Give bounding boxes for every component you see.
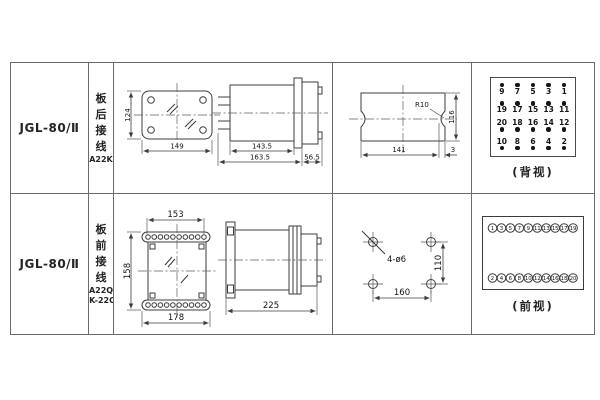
dim-height: 124 xyxy=(124,108,132,122)
dim-total-length: 225 xyxy=(263,301,279,311)
terminal-dot-icon xyxy=(531,146,536,151)
terminal-number: 10 xyxy=(525,276,532,282)
terminal-pin: 13 xyxy=(541,101,556,114)
mount-char: 线 xyxy=(96,139,107,155)
mount-char: 接 xyxy=(96,254,107,270)
terminal-pin: 14 xyxy=(541,119,556,132)
terminal-pin: 5 xyxy=(525,82,540,95)
terminal-pin: 20 xyxy=(494,119,509,132)
mount-char: 接 xyxy=(96,123,107,139)
mount-code: A22K xyxy=(89,155,113,165)
terminal-number: 15 xyxy=(552,226,559,232)
terminal-pin: 18 xyxy=(510,119,525,132)
front-view-drawing: 153 158 178 xyxy=(123,210,216,327)
strip-terminal xyxy=(158,303,163,308)
back-view-label: (背视) xyxy=(512,164,554,180)
dim-vertical-span: 110 xyxy=(434,255,444,271)
terminal-number: 4 xyxy=(546,138,551,146)
side-view-drawing: 225 xyxy=(218,222,326,315)
terminal-number: 5 xyxy=(509,226,512,232)
terminal-number: 17 xyxy=(561,226,568,232)
terminal-number: 17 xyxy=(512,106,522,114)
terminal-pin: 12 xyxy=(557,119,572,132)
terminal-number: 11 xyxy=(534,226,541,232)
terminal-number: 6 xyxy=(530,138,535,146)
strip-terminal xyxy=(189,303,194,308)
strip-terminal xyxy=(164,235,169,240)
cell-outline-drawings-row1: 124 149 143.5 xyxy=(114,63,333,194)
terminal-number: 1 xyxy=(491,226,494,232)
strip-terminal xyxy=(177,303,182,308)
mount-code: JK-22Q xyxy=(89,296,114,306)
mount-char: 线 xyxy=(96,270,107,286)
terminal-dot-icon xyxy=(515,146,520,151)
terminal-number: 14 xyxy=(543,119,553,127)
strip-terminal xyxy=(195,303,200,308)
terminal-number: 13 xyxy=(543,106,553,114)
terminal-dot-icon xyxy=(546,146,551,151)
strip-terminal xyxy=(183,303,188,308)
strip-terminal xyxy=(158,235,163,240)
terminal-number: 18 xyxy=(561,276,568,282)
strip-terminal xyxy=(146,303,151,308)
terminal-pin: 7 xyxy=(510,82,525,95)
terminal-dot-icon xyxy=(500,146,505,151)
terminal-number: 12 xyxy=(559,119,569,127)
terminal-number: 20 xyxy=(497,119,507,127)
mount-char: 前 xyxy=(96,238,107,254)
front-view-label: (前视) xyxy=(512,298,554,314)
cell-mounting-row2: 板 前 接 线 A22Q JK-22Q xyxy=(89,194,114,334)
terminal-number: 2 xyxy=(562,138,567,146)
terminal-dot-icon xyxy=(562,146,567,151)
terminal-number: 18 xyxy=(512,119,522,127)
cell-panel-cutout-row1: R10 116 141 3 xyxy=(333,63,472,194)
dimension-table: JGL-80/Ⅱ 板 后 接 线 A22K xyxy=(10,62,595,335)
strip-terminal xyxy=(152,303,157,308)
model-label: JGL-80/Ⅱ xyxy=(20,121,80,135)
cell-model-row2: JGL-80/Ⅱ xyxy=(11,194,89,334)
strip-terminal xyxy=(171,235,176,240)
terminal-number: 8 xyxy=(518,276,522,282)
terminal-row-bottom: 2468101214161820 xyxy=(488,273,577,282)
terminal-number: 13 xyxy=(543,226,550,232)
terminal-number: 19 xyxy=(497,106,507,114)
terminal-pin: 1 xyxy=(557,82,572,95)
terminal-number: 7 xyxy=(518,226,521,232)
terminal-dot-icon xyxy=(546,127,551,132)
dim-cutout-width: 141 xyxy=(392,146,405,154)
dim-width: 178 xyxy=(168,313,184,323)
terminal-number: 19 xyxy=(570,226,577,232)
rear-wiring-outline-drawing: 124 149 143.5 xyxy=(114,63,332,193)
cell-terminal-front-view: 135791113151719 2468101214161820 (前视) xyxy=(472,194,594,334)
mount-code: A22Q xyxy=(89,286,113,296)
bottom-terminal-strip xyxy=(146,303,207,308)
dim-rear-length: 56.5 xyxy=(304,154,320,162)
terminal-number: 3 xyxy=(546,88,551,96)
front-view-drawing: 124 149 xyxy=(124,83,220,154)
terminal-number: 7 xyxy=(515,88,520,96)
terminal-number: 8 xyxy=(515,138,520,146)
dim-hole-span: 153 xyxy=(167,210,183,220)
terminal-row-top: 135791113151719 xyxy=(488,223,577,232)
strip-terminal xyxy=(171,303,176,308)
cell-terminal-back-view: 9753119171513112018161412108642 (背视) xyxy=(472,63,594,194)
terminal-pin: 17 xyxy=(510,101,525,114)
top-terminal-strip xyxy=(146,235,207,240)
strip-terminal xyxy=(152,235,157,240)
dim-edge-offset: 3 xyxy=(450,146,454,154)
terminal-number: 4 xyxy=(500,276,504,282)
strip-terminal xyxy=(183,235,188,240)
mounting-text: 板 后 接 线 xyxy=(96,91,107,155)
strip-terminal xyxy=(202,303,207,308)
dim-hole-callout: 4-ø6 xyxy=(387,255,406,265)
terminal-pin: 6 xyxy=(525,138,540,151)
strip-terminal xyxy=(164,303,169,308)
terminal-number: 5 xyxy=(530,88,535,96)
strip-terminal xyxy=(146,235,151,240)
terminal-number: 3 xyxy=(500,226,503,232)
cell-mounting-row1: 板 后 接 线 A22K xyxy=(89,63,114,194)
terminal-row: 2018161412 xyxy=(494,119,572,132)
terminal-dot-icon xyxy=(562,127,567,132)
terminal-box-back-view: 9753119171513112018161412108642 xyxy=(490,77,576,157)
mount-char: 后 xyxy=(96,107,107,123)
panel-cutout-drawing: R10 116 141 3 xyxy=(333,63,472,193)
terminal-pin: 11 xyxy=(557,101,572,114)
terminal-pin: 8 xyxy=(510,138,525,151)
dim-horizontal-span: 160 xyxy=(393,288,409,298)
terminal-dot-icon xyxy=(515,127,520,132)
mount-char: 板 xyxy=(96,222,107,238)
terminal-number: 9 xyxy=(499,88,504,96)
terminal-number: 10 xyxy=(497,138,507,146)
mounting-text: 板 前 接 线 xyxy=(96,222,107,286)
strip-terminal xyxy=(195,235,200,240)
terminal-pin: 10 xyxy=(494,138,509,151)
terminal-row: 97531 xyxy=(494,82,572,95)
strip-terminal xyxy=(189,235,194,240)
terminal-number: 15 xyxy=(528,106,538,114)
terminal-pin: 3 xyxy=(541,82,556,95)
terminal-box-front-view: 135791113151719 2468101214161820 xyxy=(481,215,585,291)
cell-drill-plan-row2: 4-ø6 110 160 xyxy=(333,194,472,334)
strip-terminal xyxy=(177,235,182,240)
mount-char: 板 xyxy=(96,91,107,107)
terminal-row: 1917151311 xyxy=(494,101,572,114)
dim-cutout-height: 116 xyxy=(448,110,456,124)
dim-height: 158 xyxy=(123,263,133,279)
terminal-row: 108642 xyxy=(494,138,572,151)
dim-body-length: 143.5 xyxy=(252,143,272,151)
strip-terminal xyxy=(202,235,207,240)
model-label: JGL-80/Ⅱ xyxy=(20,257,80,271)
dim-notch-radius: R10 xyxy=(415,101,429,109)
terminal-dot-icon xyxy=(531,127,536,132)
terminal-number: 11 xyxy=(559,106,569,114)
terminal-number: 20 xyxy=(570,276,577,282)
dim-total-length: 163.5 xyxy=(250,154,270,162)
terminal-pin: 4 xyxy=(541,138,556,151)
mounting-holes-drawing: 4-ø6 110 160 xyxy=(333,196,472,332)
terminal-pin: 16 xyxy=(525,119,540,132)
terminal-number: 1 xyxy=(562,88,567,96)
terminal-number: 9 xyxy=(527,226,531,232)
terminal-number: 16 xyxy=(552,276,559,282)
terminal-number: 14 xyxy=(543,276,550,282)
terminal-number: 6 xyxy=(509,276,513,282)
terminal-pin: 2 xyxy=(557,138,572,151)
page: JGL-80/Ⅱ 板 后 接 线 A22K xyxy=(0,0,600,400)
side-view-drawing: 143.5 163.5 56.5 xyxy=(212,78,328,166)
terminal-number: 16 xyxy=(528,119,538,127)
terminal-pin: 15 xyxy=(525,101,540,114)
terminal-dot-icon xyxy=(500,127,505,132)
terminal-pin: 9 xyxy=(494,82,509,95)
front-wiring-outline-drawing: 153 158 178 xyxy=(114,196,332,332)
terminal-number: 2 xyxy=(491,276,494,282)
terminal-pin: 19 xyxy=(494,101,509,114)
cell-outline-drawings-row2: 153 158 178 xyxy=(114,194,333,334)
terminal-number: 12 xyxy=(534,276,541,282)
dim-width: 149 xyxy=(170,143,183,151)
cell-model-row1: JGL-80/Ⅱ xyxy=(11,63,89,194)
